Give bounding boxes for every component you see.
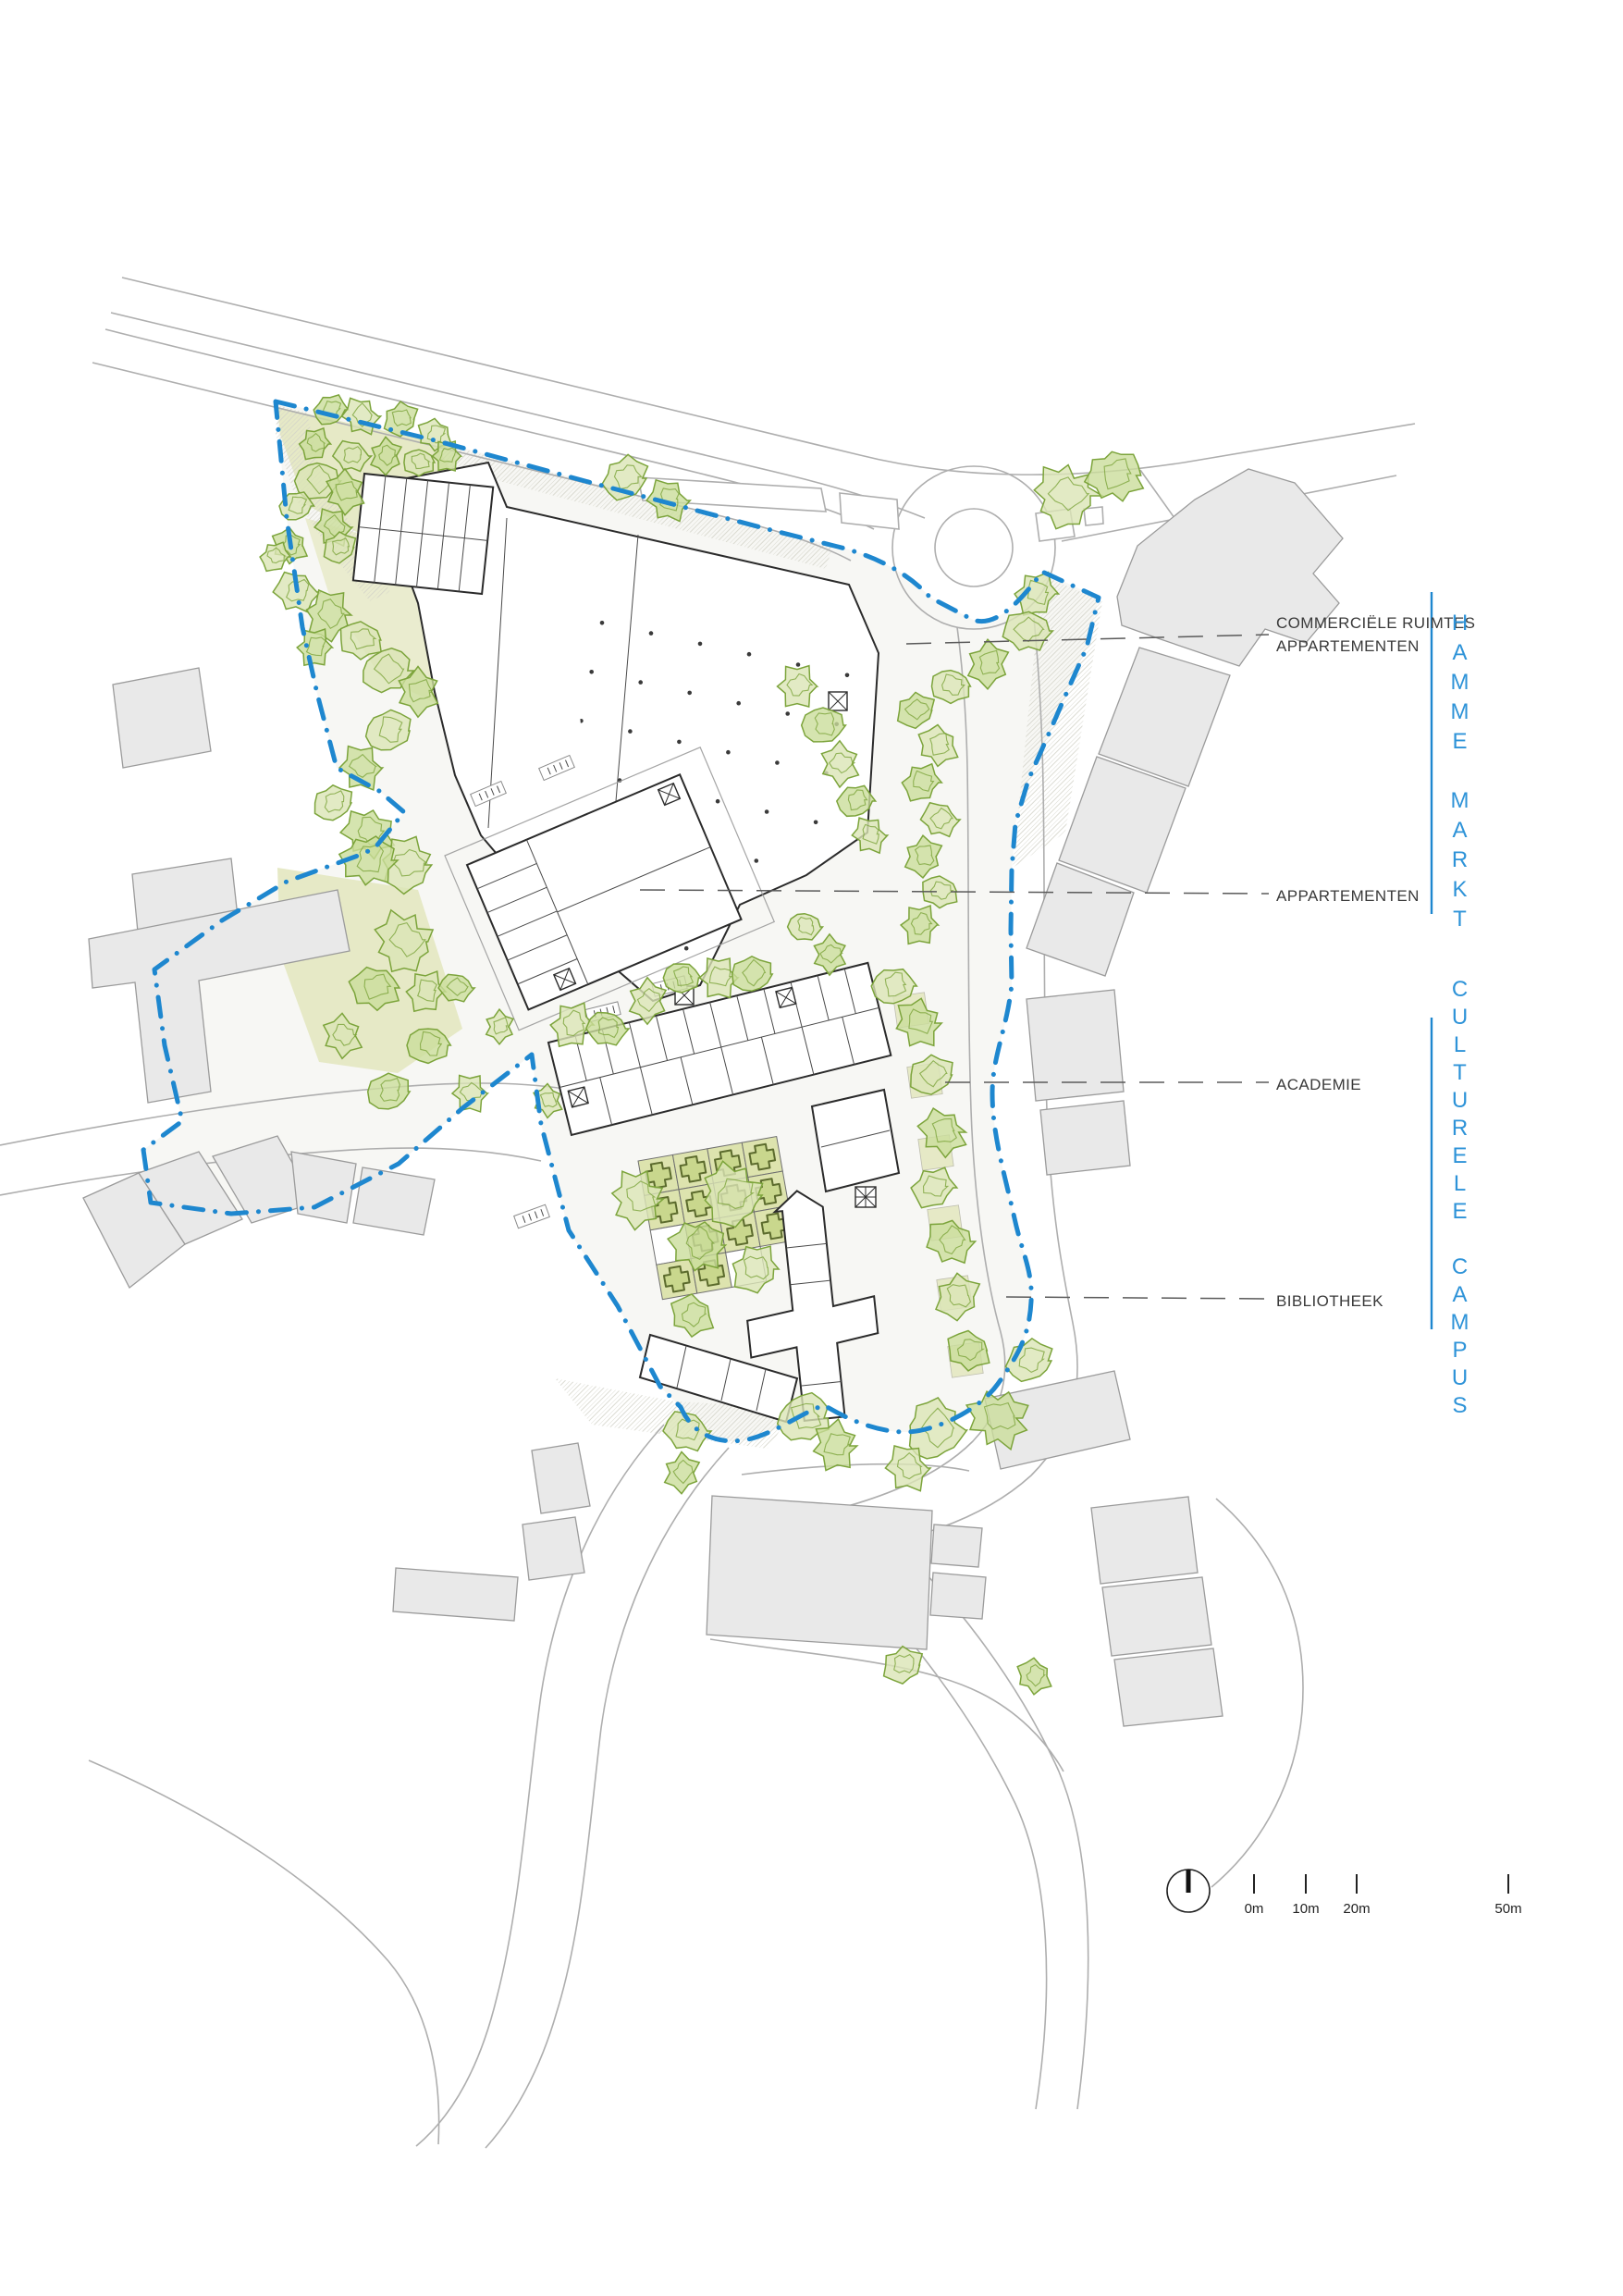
scalebar-label-0m: 0m [1245,1901,1264,1917]
side-title-culturele-campus: CULTURELE CAMPUS [1446,977,1472,1421]
scalebar-label-50m: 50m [1494,1901,1521,1917]
tree [665,1452,700,1494]
scalebar-ticks [1254,1874,1508,1894]
north-arrow-icon [1167,1870,1210,1912]
scalebar-label-10m: 10m [1292,1901,1319,1917]
annotation-library: BIBLIOTHEEK [1276,1290,1383,1314]
side-title-hamme-markt: HAMME MARKT [1446,611,1472,936]
scalebar-label-20m: 20m [1343,1901,1370,1917]
tree [1017,1658,1051,1695]
tree [884,1647,923,1685]
tree [315,785,352,821]
site-plan-canvas: COMMERCIËLE RUIMTES APPARTEMENTEN APPART… [0,0,1623,2296]
annotation-apartments: APPARTEMENTEN [1276,885,1420,908]
annotation-academy: ACADEMIE [1276,1074,1361,1097]
site-plan-drawing [0,0,1623,2296]
